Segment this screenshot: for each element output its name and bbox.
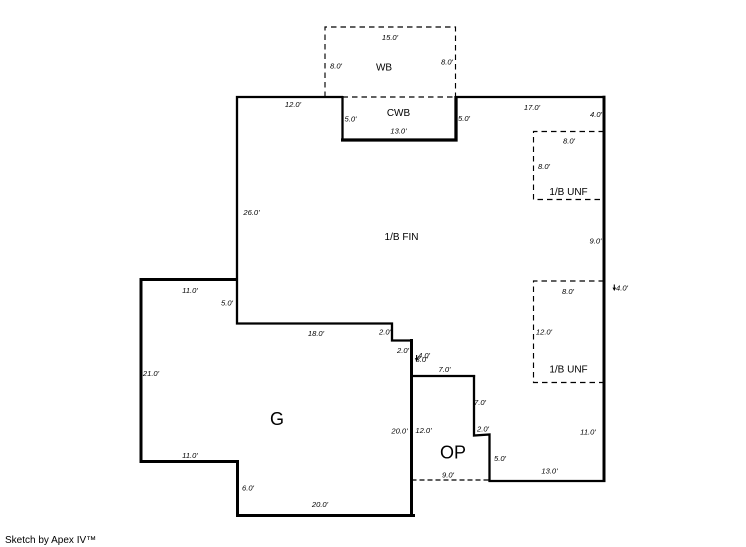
svg-text:4.0': 4.0' <box>616 284 629 293</box>
svg-text:5.0': 5.0' <box>494 454 507 463</box>
svg-text:7.0': 7.0' <box>438 365 451 374</box>
svg-text:G: G <box>270 409 284 429</box>
svg-text:1/B FIN: 1/B FIN <box>385 232 419 243</box>
svg-text:18.0': 18.0' <box>308 329 325 338</box>
svg-text:11.0': 11.0' <box>580 428 596 437</box>
svg-text:2.0': 2.0' <box>476 425 490 434</box>
svg-text:20.0': 20.0' <box>390 427 408 436</box>
svg-text:5.0': 5.0' <box>221 299 234 308</box>
svg-text:7.0': 7.0' <box>474 398 487 407</box>
svg-text:2.0': 2.0' <box>378 328 392 337</box>
svg-text:WB: WB <box>376 63 392 74</box>
svg-text:20.0': 20.0' <box>311 500 329 509</box>
svg-text:13.0': 13.0' <box>390 127 407 136</box>
svg-text:2.0': 2.0' <box>396 346 410 355</box>
svg-text:1/B UNF: 1/B UNF <box>549 187 587 198</box>
svg-text:5.0': 5.0' <box>458 114 471 123</box>
svg-text:12.0': 12.0' <box>536 328 553 337</box>
svg-text:9.0': 9.0' <box>589 237 602 246</box>
svg-text:12.0': 12.0' <box>415 426 432 435</box>
svg-text:15.0': 15.0' <box>382 33 399 42</box>
svg-text:8.0': 8.0' <box>563 137 576 146</box>
svg-text:17.0': 17.0' <box>524 103 541 112</box>
svg-text:11.0': 11.0' <box>182 286 198 295</box>
svg-text:13.0': 13.0' <box>541 467 558 476</box>
svg-text:5.0': 5.0' <box>344 115 357 124</box>
svg-text:9.0': 9.0' <box>442 471 455 480</box>
svg-text:12.0': 12.0' <box>285 100 302 109</box>
svg-text:8.0': 8.0' <box>330 62 343 71</box>
svg-text:8.0': 8.0' <box>538 162 551 171</box>
svg-text:Sketch by Apex IV™: Sketch by Apex IV™ <box>5 535 96 546</box>
svg-text:8.0': 8.0' <box>441 58 454 67</box>
svg-text:26.0': 26.0' <box>242 208 260 217</box>
svg-text:8.0': 8.0' <box>562 287 575 296</box>
svg-text:6.0': 6.0' <box>242 484 255 493</box>
svg-text:11.0': 11.0' <box>182 451 198 460</box>
svg-text:1/B UNF: 1/B UNF <box>549 365 587 376</box>
svg-text:4.0': 4.0' <box>590 110 603 119</box>
svg-text:21.0': 21.0' <box>142 369 160 378</box>
svg-text:CWB: CWB <box>387 108 411 119</box>
svg-text:OP: OP <box>440 443 466 463</box>
